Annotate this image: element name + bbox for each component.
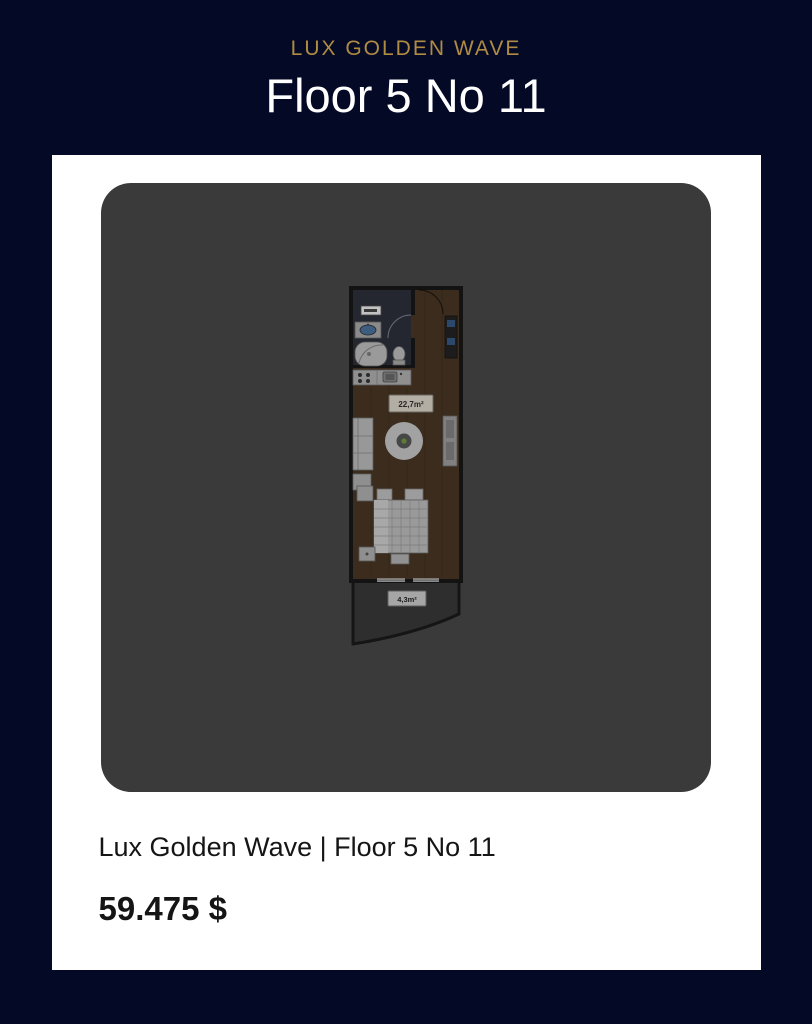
floor-plan-panel: 22,7m² [101,183,711,792]
balcony-area [353,581,459,644]
page-header: LUX GOLDEN WAVE Floor 5 No 11 [0,0,812,122]
listing-caption: Lux Golden Wave | Floor 5 No 11 [99,832,496,863]
tv-unit [443,416,457,466]
balcony-area-label: 4,3m² [397,595,417,604]
listing-card[interactable]: 22,7m² [52,155,761,970]
kitchen-counter [353,370,411,385]
floor-plan-image: 22,7m² [349,286,463,648]
main-area-tag: 22,7m² [389,395,433,412]
main-area-label: 22,7m² [398,400,424,409]
sofa [353,418,373,490]
project-name-label: LUX GOLDEN WAVE [0,36,812,62]
balcony-area-tag: 4,3m² [388,591,426,606]
round-rug [385,422,423,460]
toilet [393,347,405,366]
page-title: Floor 5 No 11 [0,70,812,122]
bathroom-area [353,290,415,368]
listing-price: 59.475 $ [99,890,227,928]
